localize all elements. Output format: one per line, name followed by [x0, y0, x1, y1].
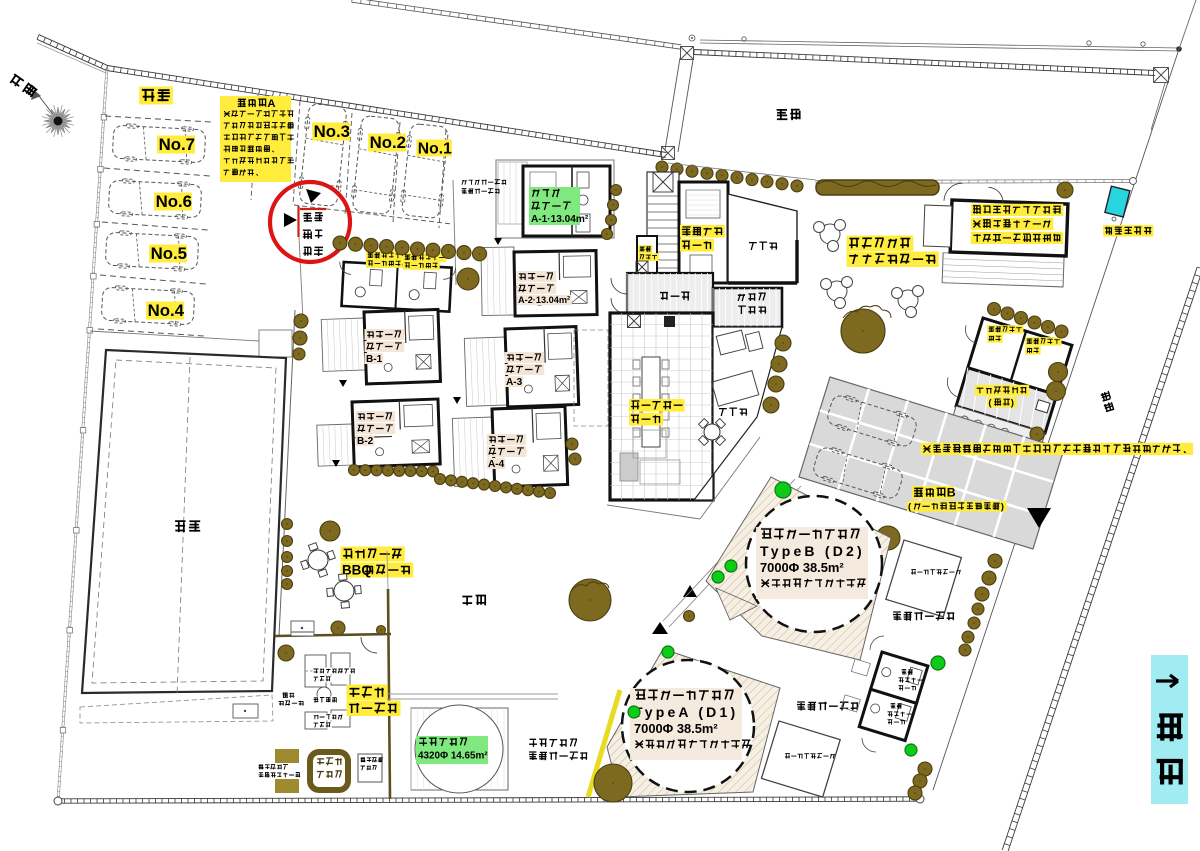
svg-text:TypeA (D1): TypeA (D1) [634, 704, 738, 720]
svg-text:No.6: No.6 [156, 192, 192, 211]
svg-text:No.5: No.5 [151, 244, 187, 263]
svg-text:No.7: No.7 [159, 135, 195, 154]
svg-text:B-1: B-1 [366, 354, 383, 365]
svg-text:): ) [1001, 502, 1004, 513]
svg-text:B-2: B-2 [357, 436, 374, 447]
svg-text:A: A [267, 98, 275, 110]
svg-text:): ) [1011, 398, 1014, 409]
svg-text:No.4: No.4 [148, 301, 185, 320]
svg-text:No.3: No.3 [314, 122, 350, 141]
svg-text:A-4: A-4 [488, 459, 505, 470]
svg-text:A-1·13.04m²: A-1·13.04m² [531, 214, 589, 225]
svg-text:7000Φ 38.5m²: 7000Φ 38.5m² [634, 721, 718, 736]
svg-text:No.2: No.2 [370, 133, 406, 152]
svg-text:7000Φ 38.5m²: 7000Φ 38.5m² [760, 560, 844, 575]
svg-text:No.1: No.1 [418, 140, 452, 157]
svg-text:A-3: A-3 [506, 377, 523, 388]
svg-text:B: B [947, 486, 956, 500]
svg-text:TypeB (D2): TypeB (D2) [760, 543, 865, 559]
svg-text:A-2·13.04m²: A-2·13.04m² [518, 295, 570, 305]
svg-text:4320Φ 14.65m²: 4320Φ 14.65m² [418, 751, 488, 762]
